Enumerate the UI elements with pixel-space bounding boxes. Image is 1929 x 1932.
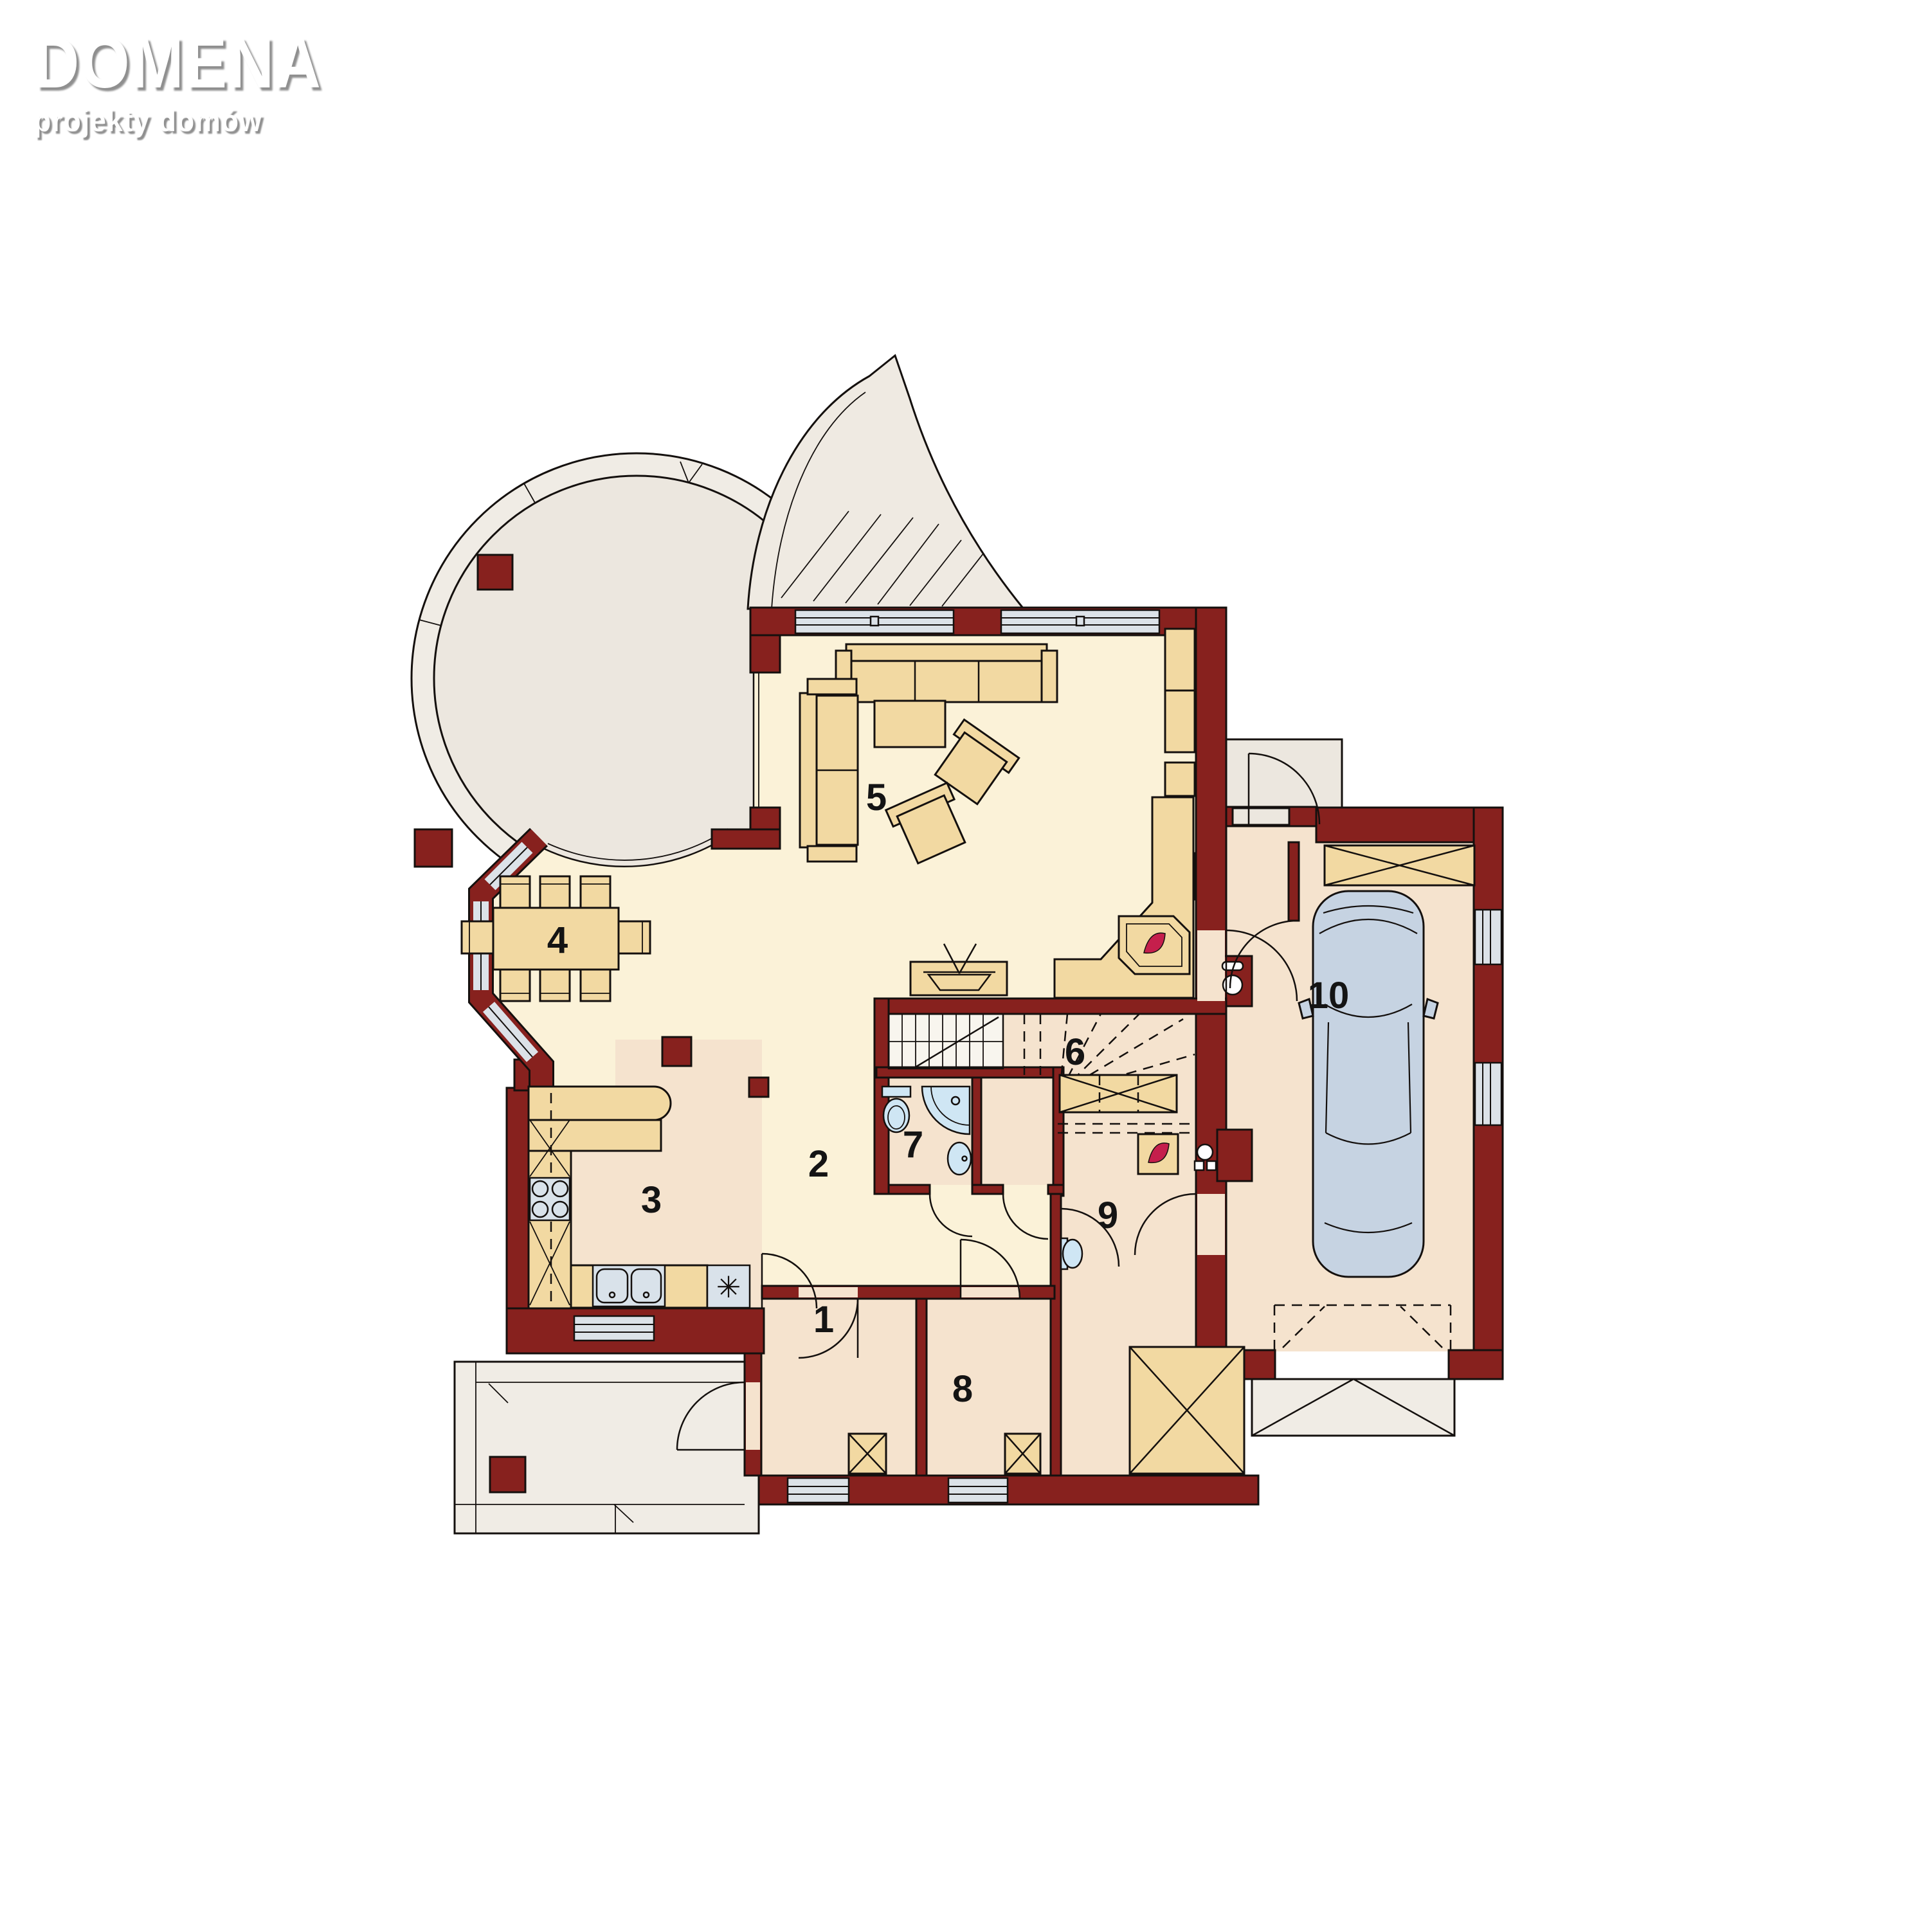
wall-bathroom-wc: [972, 1078, 981, 1194]
window-garage-east-2: [1475, 1063, 1501, 1125]
awning-shape: [748, 356, 1024, 609]
wall-living-south: [874, 998, 1226, 1014]
wall-room1-room8: [916, 1299, 927, 1476]
room8-wardrobe: [1005, 1434, 1040, 1474]
room-label-2: 2: [808, 1143, 829, 1185]
pillar-kitchen-dining: [662, 1037, 691, 1066]
window-living-north-1: [795, 610, 954, 633]
floor-stair-winder: [1003, 1014, 1196, 1075]
coffee-table: [874, 701, 945, 747]
room-label-7: 7: [903, 1124, 923, 1166]
understair-wardrobe: [1060, 1075, 1177, 1112]
garage-apron: [1252, 1379, 1454, 1436]
sofa-three-seat: [836, 644, 1057, 702]
room-label-8: 8: [952, 1368, 973, 1410]
pillar-terrace-sw: [490, 1457, 525, 1492]
floor-plan-drawing: ✳: [0, 0, 1929, 1929]
sofa-two-seat: [800, 679, 858, 862]
wall-bathroom-south-b: [972, 1185, 1003, 1194]
kitchen-sink: [593, 1265, 665, 1306]
pillar-hall: [749, 1078, 768, 1097]
window-living-north-2: [1001, 610, 1159, 633]
furnace: [1138, 1134, 1178, 1174]
room-label-6: 6: [1065, 1031, 1085, 1073]
vent-flue-boiler: [1197, 1144, 1213, 1160]
room-label-4: 4: [547, 919, 568, 961]
wall-kitchen-west: [507, 1088, 529, 1308]
vent-slot-boiler-1: [1195, 1161, 1204, 1170]
kitchen-counter-left: [529, 1151, 571, 1308]
wall-chimney-boiler: [1217, 1130, 1252, 1181]
pillar-terrace-south: [415, 829, 452, 867]
brand-logo: DOMENA projekty domów: [33, 27, 361, 136]
awning-canopy: [748, 356, 1024, 609]
window-room8-south: [948, 1478, 1008, 1503]
kitchen-counter-top: [529, 1087, 671, 1120]
wall-bathroom-south-a: [889, 1185, 930, 1194]
room-label-9: 9: [1098, 1195, 1118, 1236]
bathroom-sink: [948, 1142, 971, 1175]
room1-wardrobe: [849, 1434, 886, 1474]
room9-wardrobe: [1130, 1347, 1244, 1474]
wall-garage-stub: [1289, 842, 1299, 921]
kitchen-dishwasher: ✳: [707, 1265, 750, 1308]
window-kitchen-south: [574, 1316, 654, 1341]
boiler-room-sink: [1061, 1238, 1082, 1269]
brand-title: DOMENA: [33, 27, 322, 99]
pillar-terrace-north: [478, 555, 512, 590]
wall-room9-west: [1051, 1194, 1061, 1476]
car: [1299, 891, 1438, 1277]
room-label-1: 1: [813, 1299, 834, 1341]
floor-plan-page: DOMENA projekty domów: [0, 0, 1929, 1929]
dishwasher-symbol: ✳: [716, 1270, 741, 1304]
corner-fireplace: [1119, 916, 1190, 974]
room-label-5: 5: [866, 777, 887, 818]
vent-slot-boiler-2: [1207, 1161, 1216, 1170]
window-room1-south: [788, 1478, 849, 1503]
terrace-south-west: [455, 1362, 759, 1533]
brand-subtitle: projekty domów: [33, 105, 345, 136]
wall-bathroom-south-c: [1048, 1185, 1064, 1194]
window-garage-east-1: [1475, 910, 1501, 964]
room-label-10: 10: [1308, 975, 1350, 1016]
wall-garage-south-b: [1449, 1350, 1503, 1379]
room-label-3: 3: [641, 1179, 662, 1221]
wall-living-nw-pillar: [750, 635, 780, 673]
kitchen-stove: [530, 1178, 570, 1220]
garage-wardrobe: [1325, 845, 1474, 885]
wall-living-sw-ledge: [712, 829, 780, 849]
